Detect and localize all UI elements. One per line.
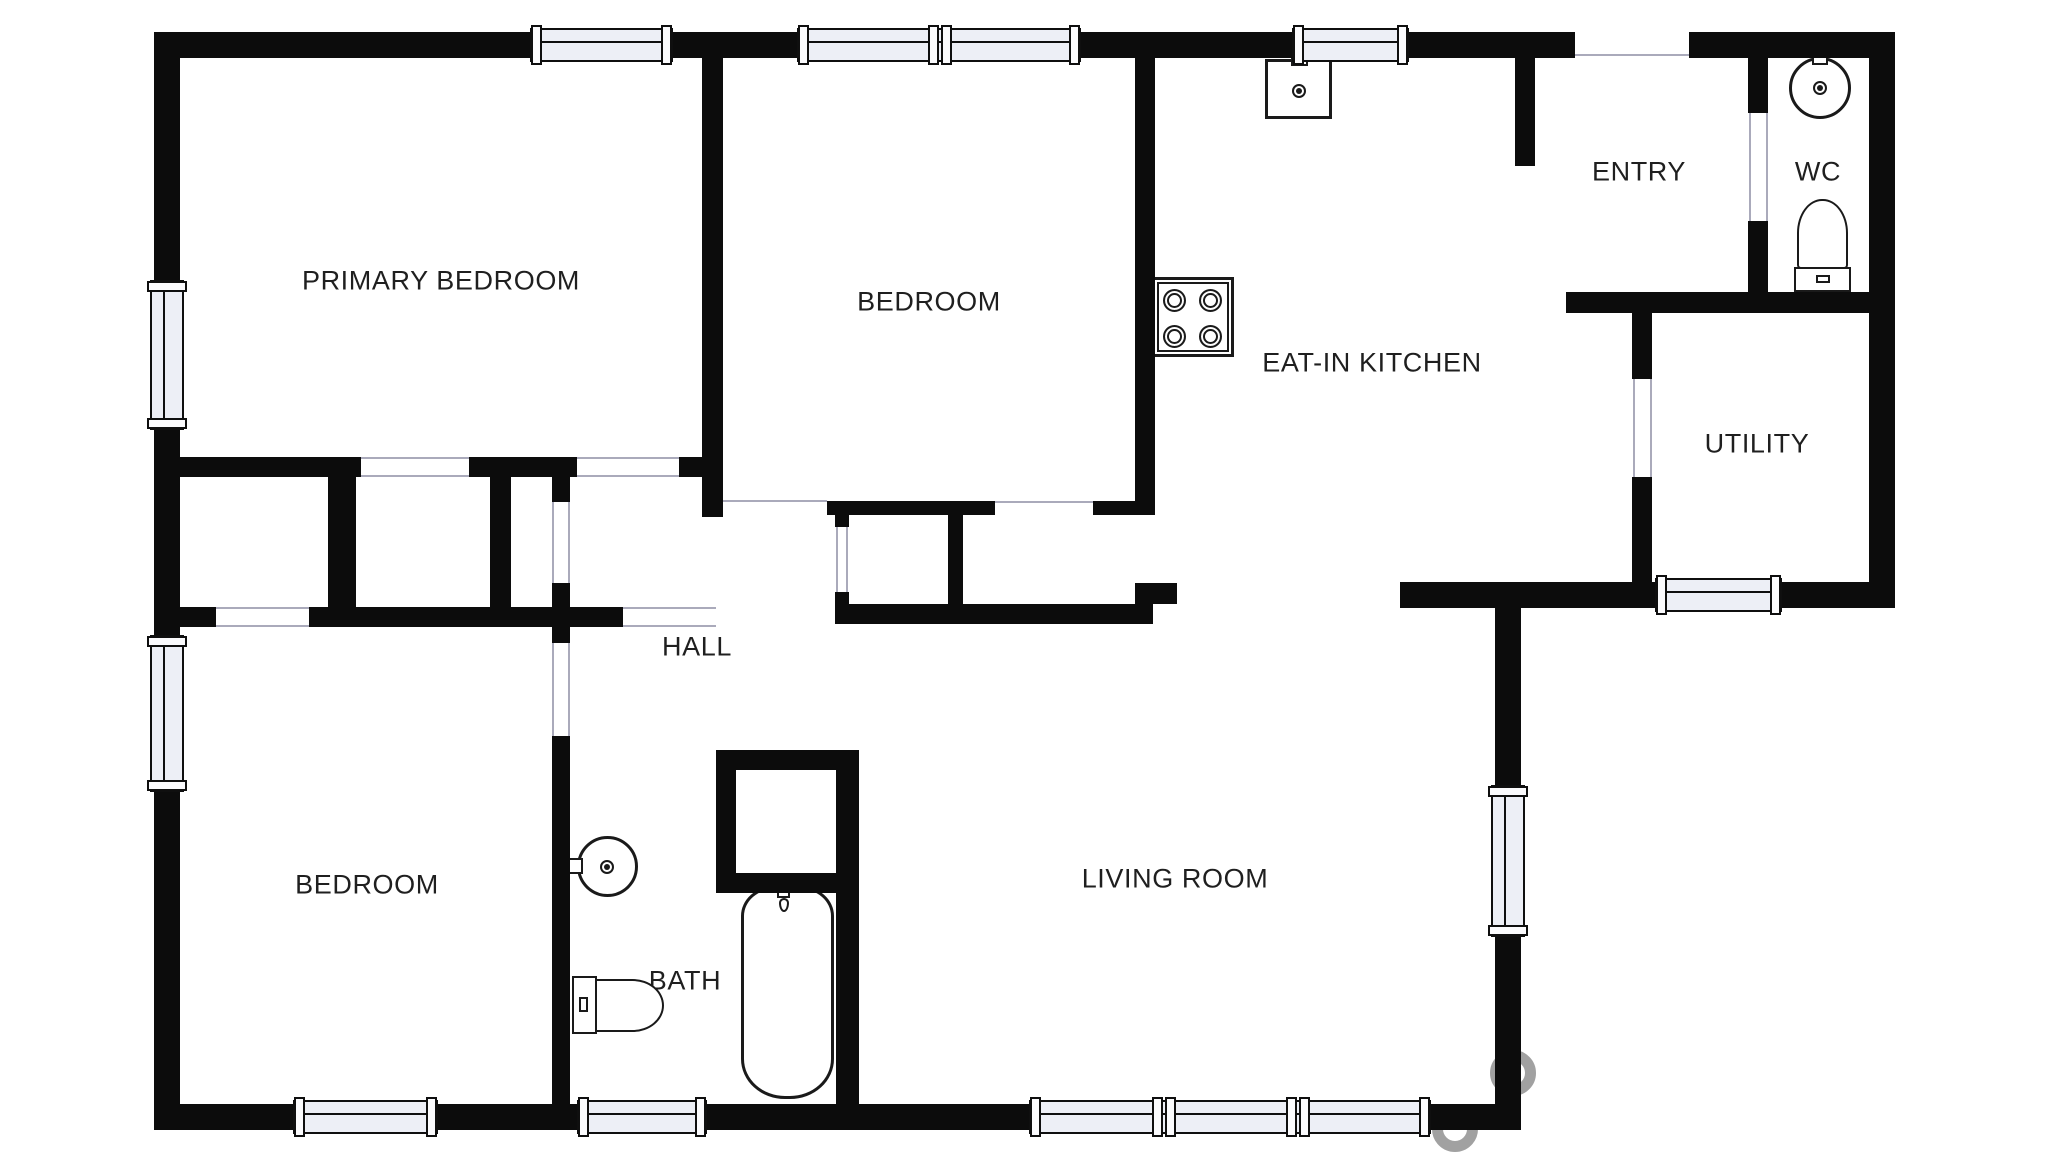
wall — [707, 1104, 1029, 1130]
window-frame-cap — [1397, 25, 1408, 65]
wall — [702, 58, 723, 517]
wall — [309, 607, 570, 627]
wall — [469, 457, 577, 477]
wall — [154, 607, 216, 627]
room-label-entry: ENTRY — [1592, 157, 1686, 188]
window-frame-cap — [695, 1097, 706, 1137]
doorway-opening-line — [568, 643, 570, 736]
doorway-opening-line — [1766, 113, 1768, 221]
wall — [673, 32, 797, 58]
wall — [552, 477, 570, 502]
window — [293, 1100, 438, 1134]
wall — [1515, 58, 1535, 166]
wall — [1689, 32, 1895, 58]
window-glass-line — [542, 41, 661, 43]
window-glass-line — [163, 292, 165, 418]
wall — [1409, 32, 1575, 58]
doorway-opening-line — [577, 457, 679, 459]
wall — [1566, 292, 1895, 313]
doorway-opening-line — [1633, 379, 1635, 477]
window-frame-cap — [798, 25, 809, 65]
doorway-opening-line — [361, 475, 469, 477]
wall — [570, 607, 623, 627]
wall — [552, 736, 570, 1104]
wall — [1869, 32, 1895, 608]
wall — [1135, 583, 1177, 604]
wall — [1748, 221, 1768, 292]
window-frame-cap — [147, 281, 187, 292]
room-label-utility: UTILITY — [1705, 429, 1810, 460]
stove-cooktop-icon — [1152, 277, 1234, 357]
window-glass-line — [305, 1113, 426, 1115]
window-frame-cap — [1656, 575, 1667, 615]
window — [577, 1100, 707, 1134]
window-glass-line — [809, 41, 1069, 43]
wc-toilet-button-icon — [1816, 275, 1830, 283]
window-frame-cap — [1286, 1097, 1297, 1137]
window-frame-cap — [1165, 1097, 1176, 1137]
wall — [1400, 582, 1655, 608]
window-frame-cap — [1293, 25, 1304, 65]
doorway-opening-line — [568, 502, 570, 583]
window-frame-cap — [147, 636, 187, 647]
room-label-bedroom-bottom: BEDROOM — [295, 870, 439, 901]
window-frame-cap — [294, 1097, 305, 1137]
doorway-opening-line — [1575, 54, 1689, 56]
wall — [1081, 32, 1295, 58]
window — [1029, 1100, 1431, 1134]
wall — [490, 477, 511, 607]
window-frame-cap — [147, 418, 187, 429]
wc-toilet-bowl-icon — [1797, 199, 1848, 269]
window — [150, 635, 184, 792]
stove-burner-icon — [1163, 289, 1186, 312]
window-frame-cap — [531, 25, 542, 65]
window-frame-cap — [1152, 1097, 1163, 1137]
wall — [154, 32, 530, 58]
room-label-living-room: LIVING ROOM — [1082, 864, 1269, 895]
window-frame-cap — [941, 25, 952, 65]
wall — [154, 792, 180, 1130]
wall — [154, 1104, 293, 1130]
window-frame-cap — [1419, 1097, 1430, 1137]
stove-burner-icon — [1199, 325, 1222, 348]
wall — [1135, 58, 1155, 515]
doorway-opening-line — [1749, 113, 1751, 221]
wall — [154, 457, 361, 477]
window-frame-cap — [928, 25, 939, 65]
window-frame-cap — [578, 1097, 589, 1137]
window-glass-line — [1304, 41, 1397, 43]
wall — [552, 583, 570, 643]
window-frame-cap — [661, 25, 672, 65]
window-glass-line — [1667, 591, 1770, 593]
window-frame-cap — [1488, 925, 1528, 936]
wall — [835, 515, 849, 527]
room-label-eat-in-kitchen: EAT-IN KITCHEN — [1262, 348, 1481, 379]
doorway-opening-line — [723, 500, 827, 502]
window-frame-cap — [1488, 786, 1528, 797]
window — [1292, 28, 1409, 62]
kitchen-sink-drain-dot — [1296, 88, 1302, 94]
doorway-opening-line — [552, 502, 554, 583]
doorway-opening-line — [216, 607, 309, 609]
wall — [835, 592, 849, 604]
wall — [438, 1104, 577, 1130]
wall — [1495, 582, 1521, 785]
wall — [1495, 937, 1521, 1130]
wall — [1632, 313, 1652, 379]
window-frame-cap — [1770, 575, 1781, 615]
wall — [328, 477, 356, 607]
floor-plan: PRIMARY BEDROOM BEDROOM EAT-IN KITCHEN E… — [0, 0, 2048, 1151]
doorway-opening-line — [577, 475, 679, 477]
window — [1655, 578, 1782, 612]
wall — [948, 515, 963, 604]
wall — [836, 750, 859, 1104]
bath-toilet-button-icon — [579, 997, 588, 1012]
wall — [835, 604, 1153, 624]
room-label-bedroom-top: BEDROOM — [857, 287, 1001, 318]
bathtub-icon — [741, 886, 834, 1099]
window-frame-cap — [1069, 25, 1080, 65]
window-frame-cap — [147, 780, 187, 791]
room-label-primary-bedroom: PRIMARY BEDROOM — [302, 266, 580, 297]
window-frame-cap — [1030, 1097, 1041, 1137]
doorway-opening-line — [846, 527, 848, 592]
room-label-hall: HALL — [662, 632, 732, 663]
doorway-opening-line — [995, 501, 1093, 503]
doorway-opening-line — [623, 625, 716, 627]
wall — [716, 873, 836, 893]
doorway-opening-line — [836, 527, 838, 592]
window — [530, 28, 673, 62]
wall — [154, 32, 180, 280]
wall — [827, 501, 995, 515]
bath-sink-drain-dot — [604, 864, 610, 870]
wall — [1632, 477, 1652, 608]
doorway-opening-line — [623, 607, 716, 609]
stove-burner-icon — [1163, 325, 1186, 348]
window-glass-line — [163, 647, 165, 780]
window-glass-line — [1504, 797, 1506, 925]
window — [797, 28, 1081, 62]
doorway-opening-line — [361, 457, 469, 459]
bath-toilet-bowl-icon — [595, 979, 664, 1032]
stove-burner-icon — [1199, 289, 1222, 312]
doorway-opening-line — [552, 643, 554, 736]
doorway-opening-line — [216, 625, 309, 627]
wc-sink-drain-dot — [1817, 85, 1823, 91]
window-frame-cap — [426, 1097, 437, 1137]
window-frame-cap — [1299, 1097, 1310, 1137]
window — [150, 280, 184, 430]
window-glass-line — [589, 1113, 695, 1115]
window-glass-line — [1041, 1113, 1419, 1115]
room-label-wc: WC — [1795, 157, 1841, 188]
doorway-opening-line — [1650, 379, 1652, 477]
wall — [1748, 32, 1768, 113]
window — [1491, 785, 1525, 937]
